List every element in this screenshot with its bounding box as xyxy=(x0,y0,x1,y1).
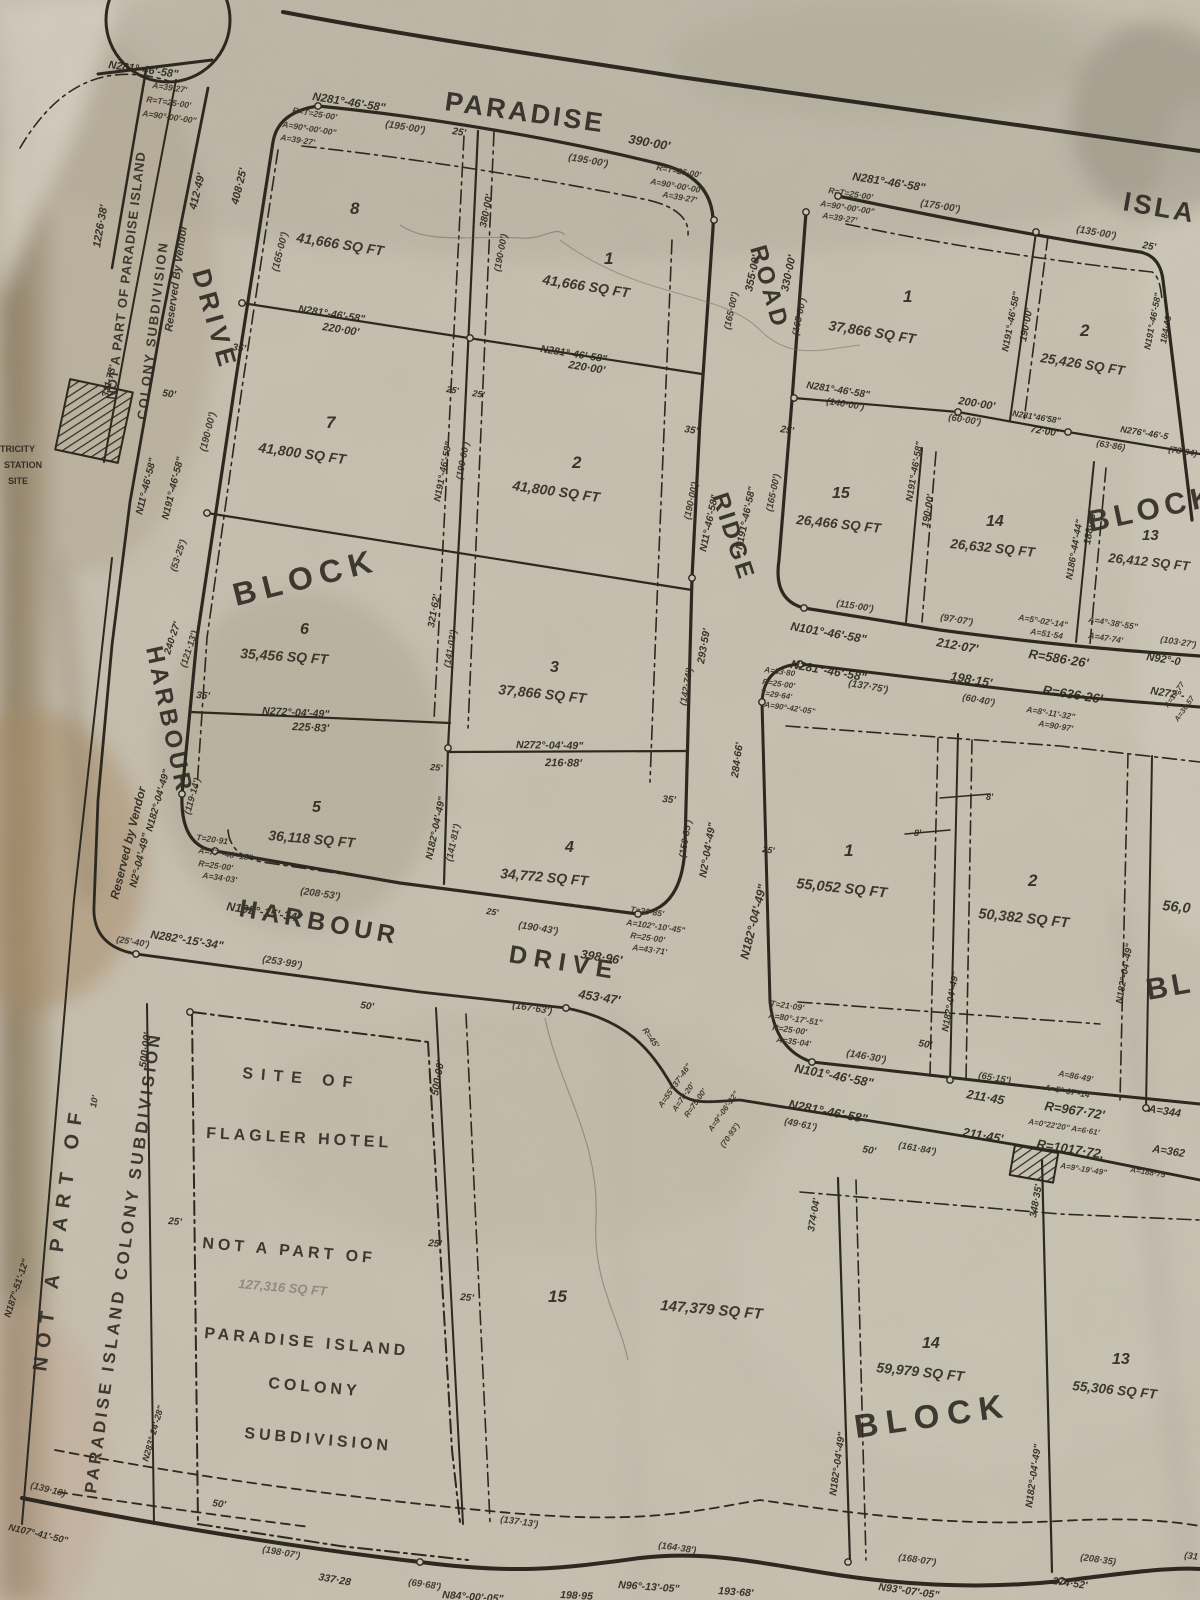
tick-dim: 50' xyxy=(212,1498,228,1511)
lot-number-13: 13 xyxy=(1112,1351,1130,1368)
tick-dim: 35' xyxy=(196,690,211,702)
lot-number-4: 4 xyxy=(564,839,574,856)
lot-number-2: 2 xyxy=(1079,321,1090,340)
tick-dim: 25' xyxy=(459,1292,475,1304)
tick-dim: 25' xyxy=(761,844,776,856)
tick-dim: 35' xyxy=(662,794,677,806)
lot-number-1: 1 xyxy=(604,249,613,268)
lot-number-7: 7 xyxy=(326,413,337,432)
bearing-label: N272°-04'-49" xyxy=(516,739,584,752)
note-substation: TRICITY xyxy=(0,444,35,454)
distance-label: 193·68' xyxy=(718,1585,754,1599)
lot-number-13: 13 xyxy=(1142,527,1159,544)
tick-dim: 25' xyxy=(485,906,500,918)
lot-number-2: 2 xyxy=(571,453,582,472)
lot-number-1: 1 xyxy=(903,287,912,306)
lot-number-5: 5 xyxy=(312,799,322,816)
plat-map-svg: N281°-46'-58"A=39·27'R=T=25·00'A=90°-00'… xyxy=(0,0,1200,1600)
lot-number-2: 2 xyxy=(1027,871,1038,890)
lot-number-6: 6 xyxy=(300,621,309,638)
tick-dim: 8' xyxy=(986,792,994,802)
tick-dim: 25' xyxy=(429,762,444,773)
tick-dim: 8' xyxy=(914,828,922,838)
distance-label: 198·95 xyxy=(560,1589,593,1600)
lot-number-14: 14 xyxy=(922,1335,940,1352)
plat-scan: N281°-46'-58"A=39·27'R=T=25·00'A=90°-00'… xyxy=(0,0,1200,1600)
lot-number-15: 15 xyxy=(832,485,851,502)
tick-dim: 25' xyxy=(451,126,468,139)
lot-number-1: 1 xyxy=(844,841,853,860)
tick-dim: 50' xyxy=(162,388,178,401)
tick-dim: 25' xyxy=(167,1216,183,1228)
lot-number-14: 14 xyxy=(986,513,1004,530)
lot-number-8: 8 xyxy=(350,199,360,218)
lot-number-3: 3 xyxy=(550,659,559,676)
distance-label: 225·83' xyxy=(291,721,330,735)
lot-area: 56,0 xyxy=(1162,898,1192,917)
paren-dim: (31 xyxy=(1184,1550,1199,1563)
tick-dim: 25' xyxy=(427,1238,443,1250)
tick-dim: 25' xyxy=(779,424,796,437)
tick-dim: 50' xyxy=(360,1000,376,1013)
tick-dim: 35' xyxy=(684,424,700,437)
note-substation: SITE xyxy=(8,476,28,486)
lot-number-15: 15 xyxy=(548,1287,567,1306)
distance-label: 216·88' xyxy=(544,757,582,770)
note-substation: STATION xyxy=(4,460,42,470)
